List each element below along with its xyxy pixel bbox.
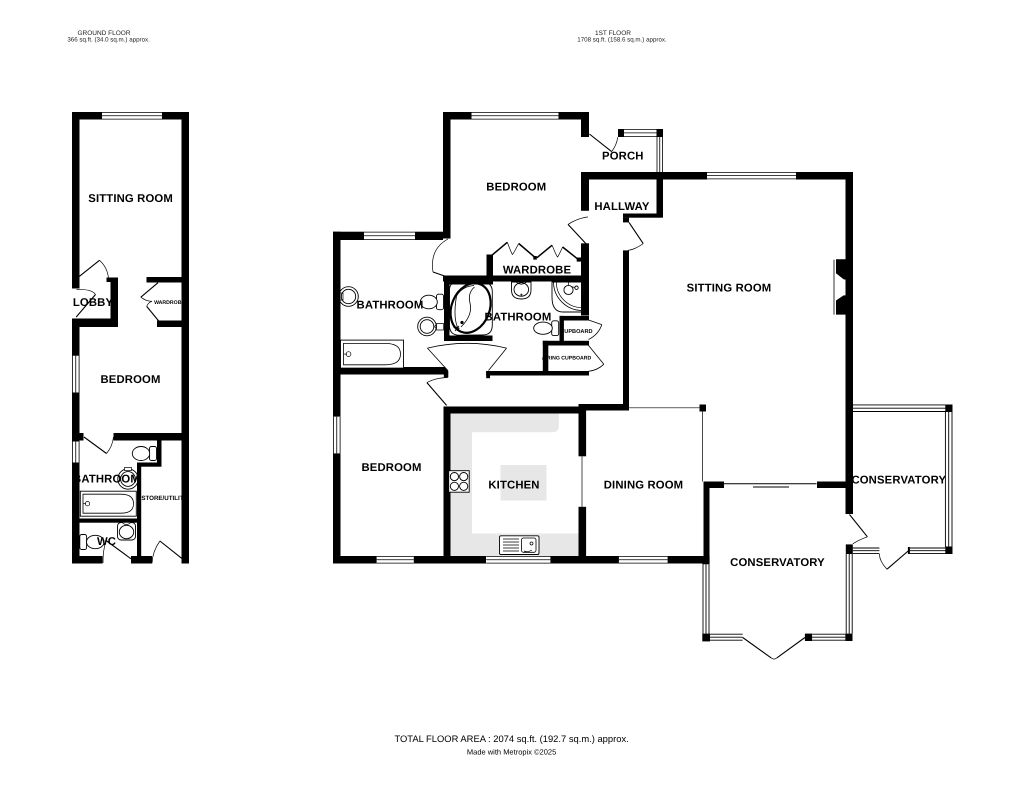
svg-text:BEDROOM: BEDROOM <box>361 462 421 474</box>
svg-text:PORCH: PORCH <box>602 151 644 163</box>
svg-text:HALLWAY: HALLWAY <box>594 201 650 213</box>
svg-text:STORE/UTILITY: STORE/UTILITY <box>141 495 188 502</box>
svg-text:CONSERVATORY: CONSERVATORY <box>730 557 825 569</box>
svg-text:LOBBY: LOBBY <box>73 297 114 309</box>
svg-text:WARDROBE: WARDROBE <box>503 265 572 277</box>
svg-text:KITCHEN: KITCHEN <box>488 480 539 492</box>
svg-text:BEDROOM: BEDROOM <box>100 374 160 386</box>
svg-text:BATHROOM: BATHROOM <box>485 312 552 324</box>
svg-text:BATHROOM: BATHROOM <box>73 474 140 486</box>
svg-text:TOTAL FLOOR AREA : 2074 sq.ft.: TOTAL FLOOR AREA : 2074 sq.ft. (192.7 sq… <box>394 733 628 744</box>
svg-text:WC: WC <box>97 536 116 548</box>
svg-text:BATHROOM: BATHROOM <box>357 300 424 312</box>
svg-text:SITTING ROOM: SITTING ROOM <box>687 283 772 295</box>
svg-text:WARDROBE: WARDROBE <box>154 300 185 306</box>
svg-text:SITTING ROOM: SITTING ROOM <box>88 193 173 205</box>
svg-text:BEDROOM: BEDROOM <box>486 182 546 194</box>
svg-text:CUPBOARD: CUPBOARD <box>560 329 592 335</box>
svg-text:366 sq.ft. (34.0 sq.m.) approx: 366 sq.ft. (34.0 sq.m.) approx. <box>67 36 150 43</box>
svg-text:1708 sq.ft. (158.6 sq.m.) appr: 1708 sq.ft. (158.6 sq.m.) approx. <box>577 36 667 43</box>
svg-text:DINING ROOM: DINING ROOM <box>604 480 683 492</box>
svg-text:Made with Metropix ©2025: Made with Metropix ©2025 <box>467 748 556 757</box>
svg-text:AIRING CUPBOARD: AIRING CUPBOARD <box>542 356 592 362</box>
svg-text:CONSERVATORY: CONSERVATORY <box>851 475 946 487</box>
